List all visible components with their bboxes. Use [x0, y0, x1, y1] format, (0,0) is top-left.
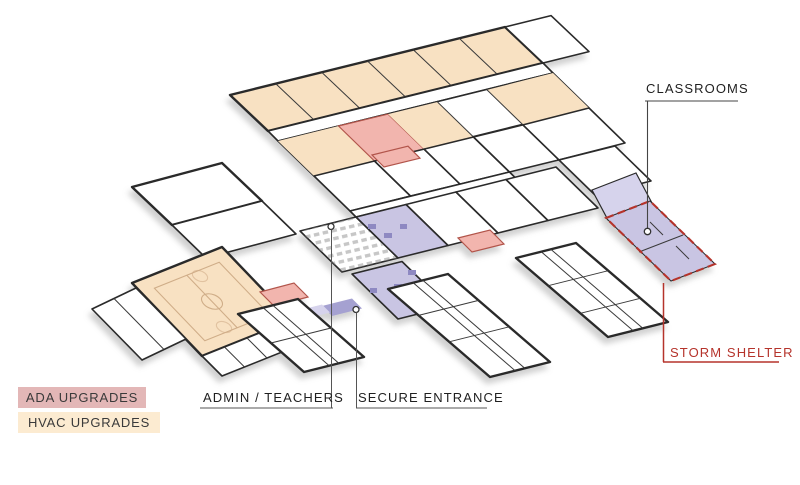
- storm-shelter-zone: [592, 173, 715, 281]
- admin-teachers-label: ADMIN / TEACHERS: [203, 390, 344, 405]
- building-drawing: [92, 16, 715, 377]
- classrooms-leader-dot: [644, 228, 650, 234]
- upper-left-rooms: [132, 163, 296, 258]
- admin-leader-dot: [328, 224, 334, 230]
- secure-entrance-leader-dot: [353, 307, 359, 313]
- ada-upgrades-legend: ADA UPGRADES: [18, 387, 146, 408]
- classroom-finger-wings: [238, 243, 668, 377]
- storm-shelter-label: STORM SHELTER: [670, 345, 794, 360]
- hvac-upgrades-legend: HVAC UPGRADES: [18, 412, 160, 433]
- classrooms-label: CLASSROOMS: [646, 81, 749, 96]
- secure-entrance-label: SECURE ENTRANCE: [358, 390, 504, 405]
- floor-plan-diagram: CLASSROOMS STORM SHELTER ADMIN / TEACHER…: [0, 0, 800, 485]
